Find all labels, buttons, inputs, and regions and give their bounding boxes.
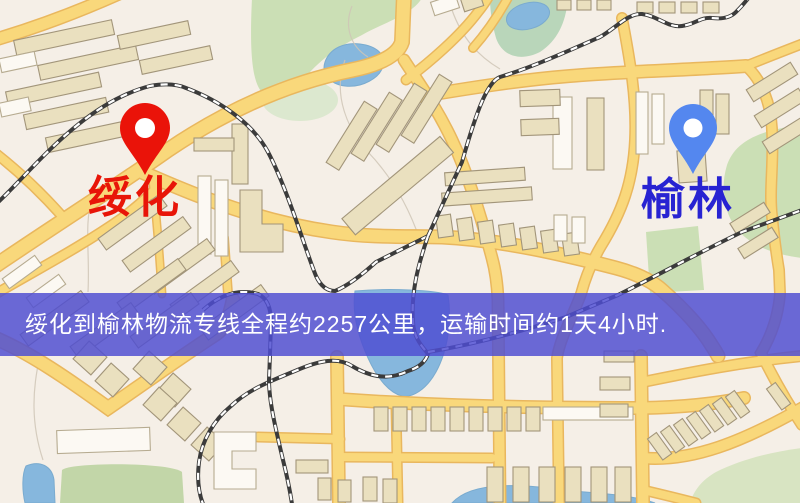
route-info-text: 绥化到榆林物流专线全程约2257公里，运输时间约1天4小时. (25, 311, 667, 337)
route-map-viewport: 绥化 榆林 绥化到榆林物流专线全程约2257公里，运输时间约1天4小时. (0, 0, 800, 503)
destination-pin-hole (684, 119, 703, 138)
map-canvas[interactable] (0, 0, 800, 503)
destination-city-label: 榆林 (641, 178, 735, 222)
route-info-banner: 绥化到榆林物流专线全程约2257公里，运输时间约1天4小时. (0, 293, 800, 356)
origin-city-label: 绥化 (88, 176, 182, 220)
origin-pin-hole (135, 118, 155, 138)
